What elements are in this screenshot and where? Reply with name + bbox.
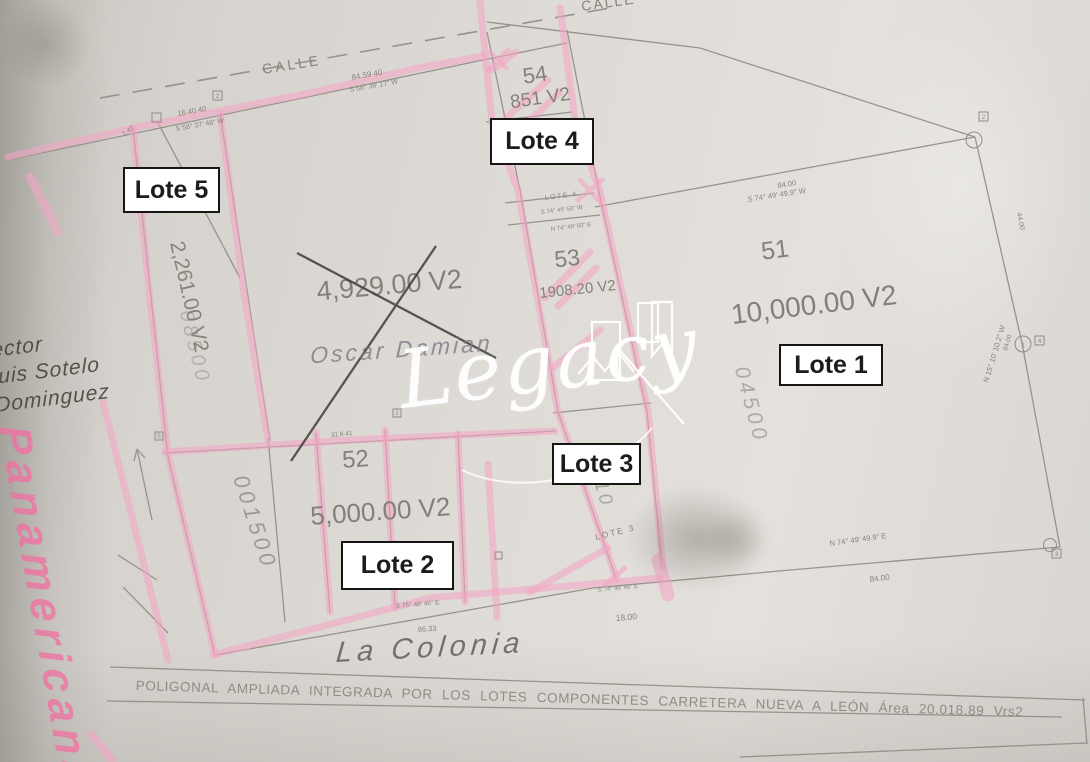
label-lote-2: Lote 2 (341, 541, 454, 590)
label-lote-5: Lote 5 (123, 167, 220, 213)
label-lote-1: Lote 1 (779, 344, 883, 386)
label-lote-4: Lote 4 (490, 118, 594, 165)
label-lote-3: Lote 3 (552, 443, 641, 485)
survey-plat-photo: 2 2 1 4 3 2 5 CALLE CALLE 84.59 40 S 58°… (0, 0, 1090, 762)
